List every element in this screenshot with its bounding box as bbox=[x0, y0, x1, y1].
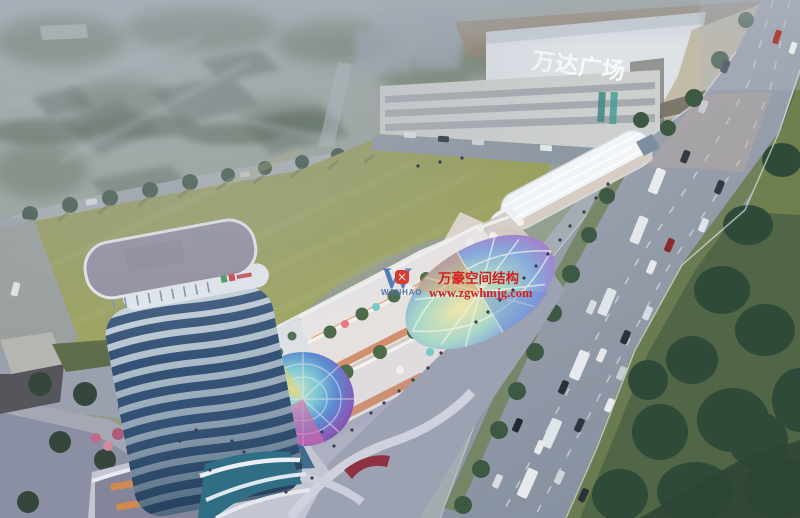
svg-text:www.zgwhmjg.com: www.zgwhmjg.com bbox=[429, 286, 533, 300]
svg-text:WANHAO: WANHAO bbox=[381, 288, 422, 297]
svg-text:万豪空间结构: 万豪空间结构 bbox=[437, 270, 519, 286]
